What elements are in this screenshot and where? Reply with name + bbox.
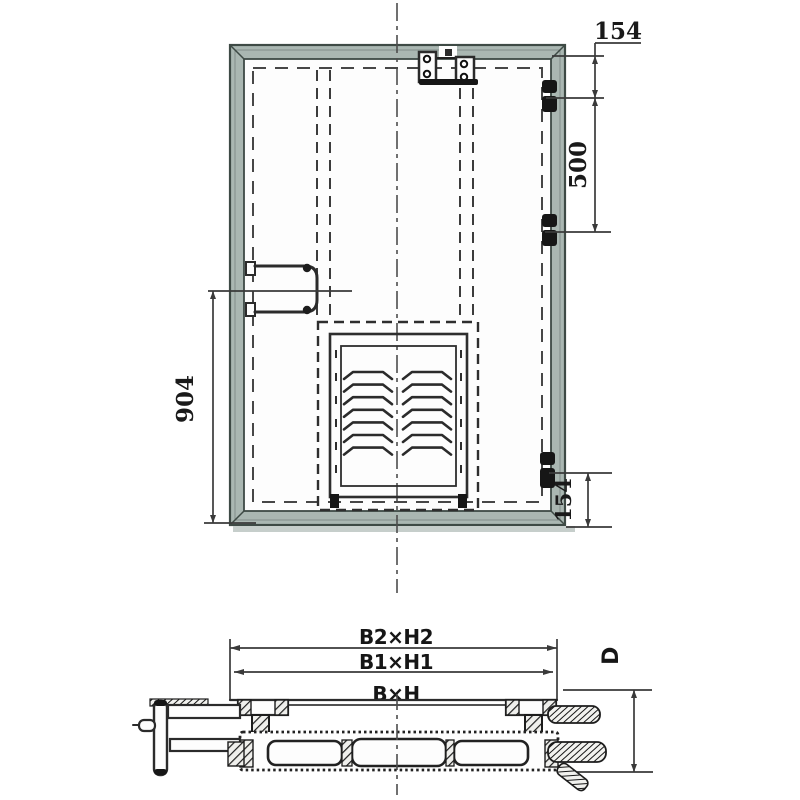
section-body — [133, 694, 606, 795]
dimension-bottom-154: 154 — [549, 473, 612, 527]
leaf-stiffener — [352, 739, 446, 766]
front-view: 154 500 154 904 — [172, 3, 642, 593]
leaf-stiffener — [268, 741, 342, 765]
section-hinge-assembly — [548, 706, 606, 793]
section-view: B2×H2 B1×H1 B×H D — [133, 625, 653, 795]
dimension-b1h1: B1×H1 — [234, 650, 553, 675]
door-frame — [230, 45, 575, 532]
bolt-icon — [424, 71, 430, 77]
leaf-stiffener — [454, 741, 528, 765]
door-technical-drawing: 154 500 154 904 — [0, 0, 800, 800]
dim-label-bh: B×H — [372, 682, 419, 706]
bolt-icon — [303, 306, 311, 314]
dimension-bh: B×H — [272, 682, 524, 708]
section-door-leaf — [240, 732, 558, 770]
dim-label-b2h2: B2×H2 — [359, 625, 433, 649]
dim-label-904: 904 — [172, 375, 199, 423]
handle-knob — [139, 720, 155, 731]
technical-drawing-page: 154 500 154 904 — [0, 0, 800, 800]
bolt-icon — [461, 61, 467, 67]
dim-label-b1h1: B1×H1 — [359, 650, 433, 674]
dimension-b2h2: B2×H2 — [230, 625, 557, 651]
dim-label-154-top: 154 — [594, 18, 642, 45]
bolt-icon — [303, 264, 311, 272]
dim-label-d: D — [599, 647, 624, 665]
dim-label-500: 500 — [565, 141, 592, 189]
frame-bottom-shadow — [233, 526, 575, 532]
bolt-icon — [424, 56, 430, 62]
section-handle-assembly — [133, 699, 244, 775]
dim-label-154-bottom: 154 — [551, 478, 576, 522]
